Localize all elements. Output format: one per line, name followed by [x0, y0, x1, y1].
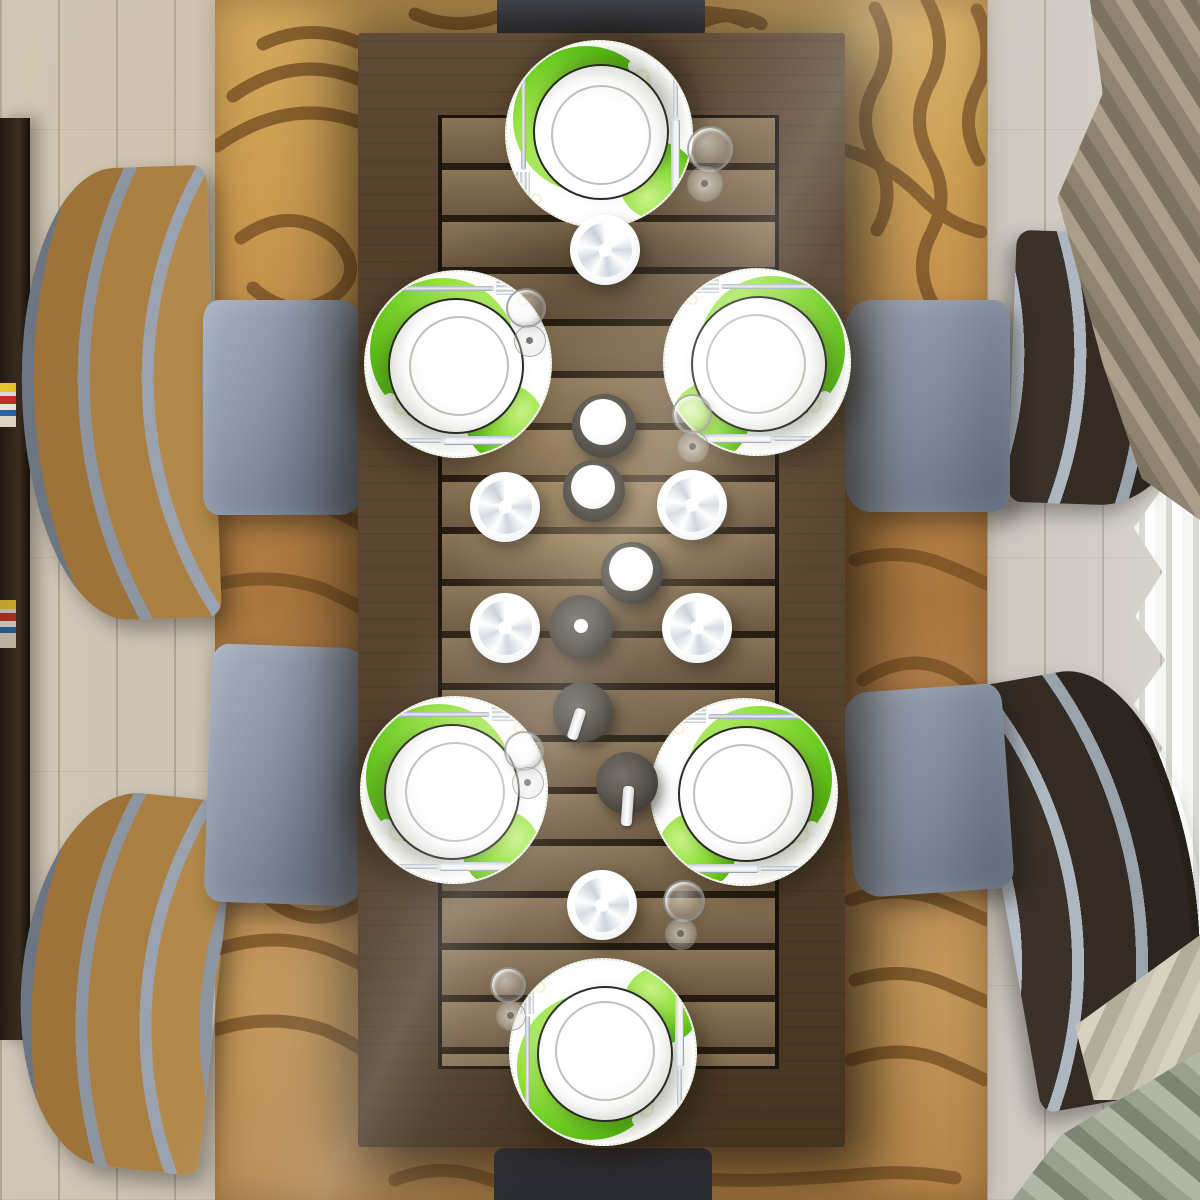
knife-blade — [444, 436, 522, 445]
swirl-candle — [567, 870, 637, 940]
candlestick — [553, 682, 613, 742]
wine-glass-bowl — [504, 731, 544, 771]
wine-glass-bowl — [663, 880, 705, 922]
fork — [392, 707, 516, 721]
magazine-stack — [0, 600, 16, 648]
candlestick — [596, 752, 658, 814]
magazine-stack — [0, 383, 16, 427]
plate-well — [693, 744, 793, 844]
swirl-candle — [657, 470, 727, 540]
knife-blade — [675, 988, 684, 1066]
fork-tines — [695, 279, 719, 293]
plate-well — [551, 85, 651, 185]
pillar-candle-holder — [572, 394, 636, 458]
wine-glass-stem — [701, 180, 708, 187]
knife-handle — [398, 438, 442, 443]
plate-well — [555, 1001, 655, 1101]
wine-glass-stem — [689, 443, 696, 450]
blossom-graphic — [673, 723, 686, 736]
fork-handle — [525, 1016, 530, 1110]
fork — [396, 281, 520, 295]
knife — [671, 988, 687, 1116]
dinner-plate — [533, 64, 669, 200]
swirl-candle-top — [575, 878, 629, 932]
plate-well — [706, 314, 806, 414]
knife-handle — [677, 1068, 682, 1112]
votive-holder — [549, 595, 613, 659]
chair-west-lower-seat — [204, 643, 371, 906]
pillar-candle — [609, 547, 653, 591]
wine-glass-stem — [524, 779, 531, 786]
dinner-plate — [678, 726, 814, 862]
pillar-candle-holder — [563, 460, 625, 522]
chair-east-upper-seat — [845, 300, 1010, 512]
knife-handle — [760, 866, 804, 871]
fork-handle — [396, 712, 490, 717]
wine-glass-bowl — [687, 126, 733, 172]
knife-handle — [394, 864, 438, 869]
fork-tines — [682, 709, 706, 723]
knife-blade — [440, 862, 518, 871]
placemat-east-lower — [650, 698, 838, 886]
wine-glass-stem — [526, 337, 533, 344]
knife-handle — [773, 436, 817, 441]
knife — [680, 860, 808, 876]
wine-glass-bowl — [672, 394, 712, 434]
knife — [390, 858, 518, 874]
dining-room-scene — [0, 0, 1200, 1200]
knife-blade — [680, 864, 758, 873]
wine-glass-stem — [507, 1012, 514, 1019]
fork-handle — [708, 714, 802, 719]
fork — [682, 709, 806, 723]
swirl-candle-top — [478, 480, 532, 534]
sideboard — [0, 118, 30, 1040]
wine-glass-bowl — [506, 288, 546, 328]
fork — [516, 72, 530, 196]
fork — [695, 279, 819, 293]
blossom-graphic — [686, 293, 699, 306]
chair-west-upper-seat — [203, 300, 365, 515]
swirl-candle-top — [665, 478, 719, 532]
swirl-candle — [570, 215, 640, 285]
plate-well — [405, 742, 505, 842]
placemat-south-head — [509, 958, 697, 1146]
fork-handle — [400, 286, 494, 291]
wine-glass-bowl — [490, 967, 526, 1003]
chair-south-head-seat — [494, 1148, 712, 1200]
white-candle — [566, 707, 586, 741]
chair-east-lower-seat — [841, 683, 1015, 899]
dinner-plate — [388, 298, 524, 434]
knife — [394, 432, 522, 448]
fork-tines — [516, 172, 530, 196]
swirl-candle — [470, 593, 540, 663]
blossom-graphic — [534, 981, 547, 994]
wine-glass-stem — [677, 930, 684, 937]
knife — [667, 70, 683, 198]
swirl-candle — [470, 472, 540, 542]
pillar-candle — [571, 465, 615, 509]
votive-candle — [574, 619, 588, 633]
swirl-candle-top — [578, 223, 632, 277]
plate-well — [409, 316, 509, 416]
blossom-graphic — [530, 193, 543, 206]
knife-handle — [673, 74, 678, 118]
placemat-north-head — [505, 40, 693, 228]
pillar-candle-holder — [601, 542, 663, 604]
knife-blade — [671, 120, 680, 198]
pillar-candle — [580, 399, 626, 445]
fork-handle — [521, 76, 526, 170]
swirl-candle-top — [670, 601, 724, 655]
swirl-candle — [662, 593, 732, 663]
dinner-plate — [537, 986, 673, 1122]
fork-tines — [492, 707, 516, 721]
dinner-plate — [384, 724, 520, 860]
knife — [693, 430, 821, 446]
fork-handle — [721, 284, 815, 289]
swirl-candle-top — [478, 601, 532, 655]
